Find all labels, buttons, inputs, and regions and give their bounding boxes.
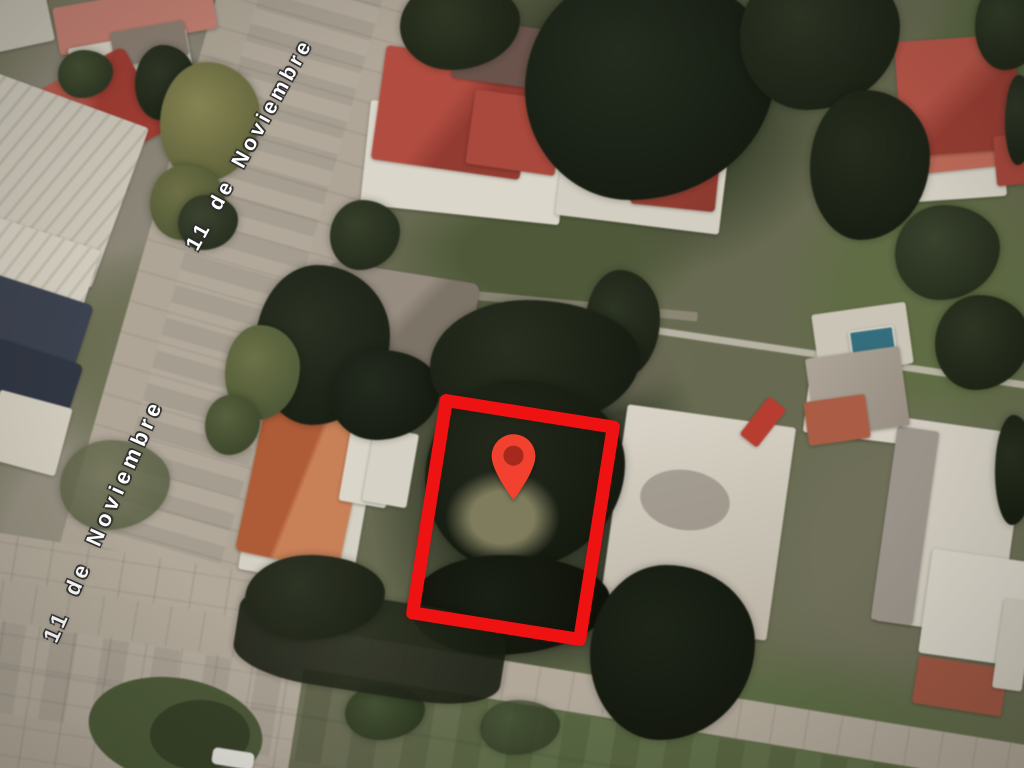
pin-dot — [503, 446, 523, 466]
pin-body — [492, 434, 536, 500]
map-annotations: 11 de Noviembre 11 de Noviembre — [0, 0, 1024, 768]
satellite-map[interactable]: 11 de Noviembre 11 de Noviembre — [0, 0, 1024, 768]
location-pin-icon[interactable] — [487, 432, 540, 502]
street-label: 11 de Noviembre — [182, 34, 319, 255]
street-label: 11 de Noviembre — [38, 395, 169, 647]
